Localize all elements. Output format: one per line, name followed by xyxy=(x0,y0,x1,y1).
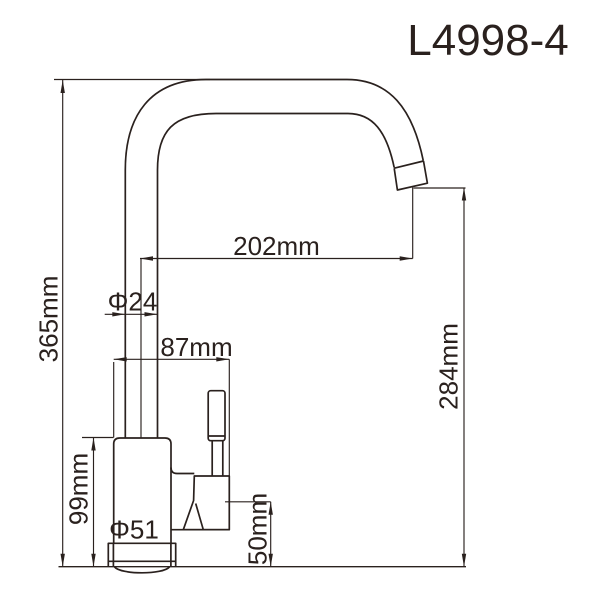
spout-aerator-tip xyxy=(394,161,427,190)
arrow-365-bottom xyxy=(61,554,65,567)
label-202mm: 202mm xyxy=(233,231,320,261)
label-phi51: Φ51 xyxy=(109,515,159,545)
handle-stem xyxy=(212,441,223,476)
arrow-87-left xyxy=(114,357,127,361)
drawing-title: L4998-4 xyxy=(407,16,568,65)
arrow-284-top xyxy=(462,188,466,201)
arrow-202-right xyxy=(400,256,413,260)
base-flange xyxy=(108,543,175,566)
technical-drawing-page: L4998-4 202mm Φ24 87mm 365mm 284mm 99mm … xyxy=(0,0,600,600)
arrow-99-top xyxy=(91,438,95,451)
spout-inner-edge xyxy=(158,114,395,439)
label-50mm: 50mm xyxy=(243,493,273,565)
base-dome xyxy=(115,567,170,573)
handle-grip xyxy=(208,391,225,441)
label-87mm: 87mm xyxy=(160,332,232,362)
arrow-99-bottom xyxy=(91,554,95,567)
label-phi24: Φ24 xyxy=(108,287,158,317)
faucet-dimension-drawing: L4998-4 202mm Φ24 87mm 365mm 284mm 99mm … xyxy=(0,0,600,600)
arrow-284-bottom xyxy=(462,554,466,567)
label-284mm: 284mm xyxy=(434,323,464,410)
label-99mm: 99mm xyxy=(64,453,94,525)
label-365mm: 365mm xyxy=(34,276,64,363)
arrow-365-top xyxy=(61,80,65,93)
arrow-202-left xyxy=(140,256,153,260)
handle-socket xyxy=(183,476,229,530)
